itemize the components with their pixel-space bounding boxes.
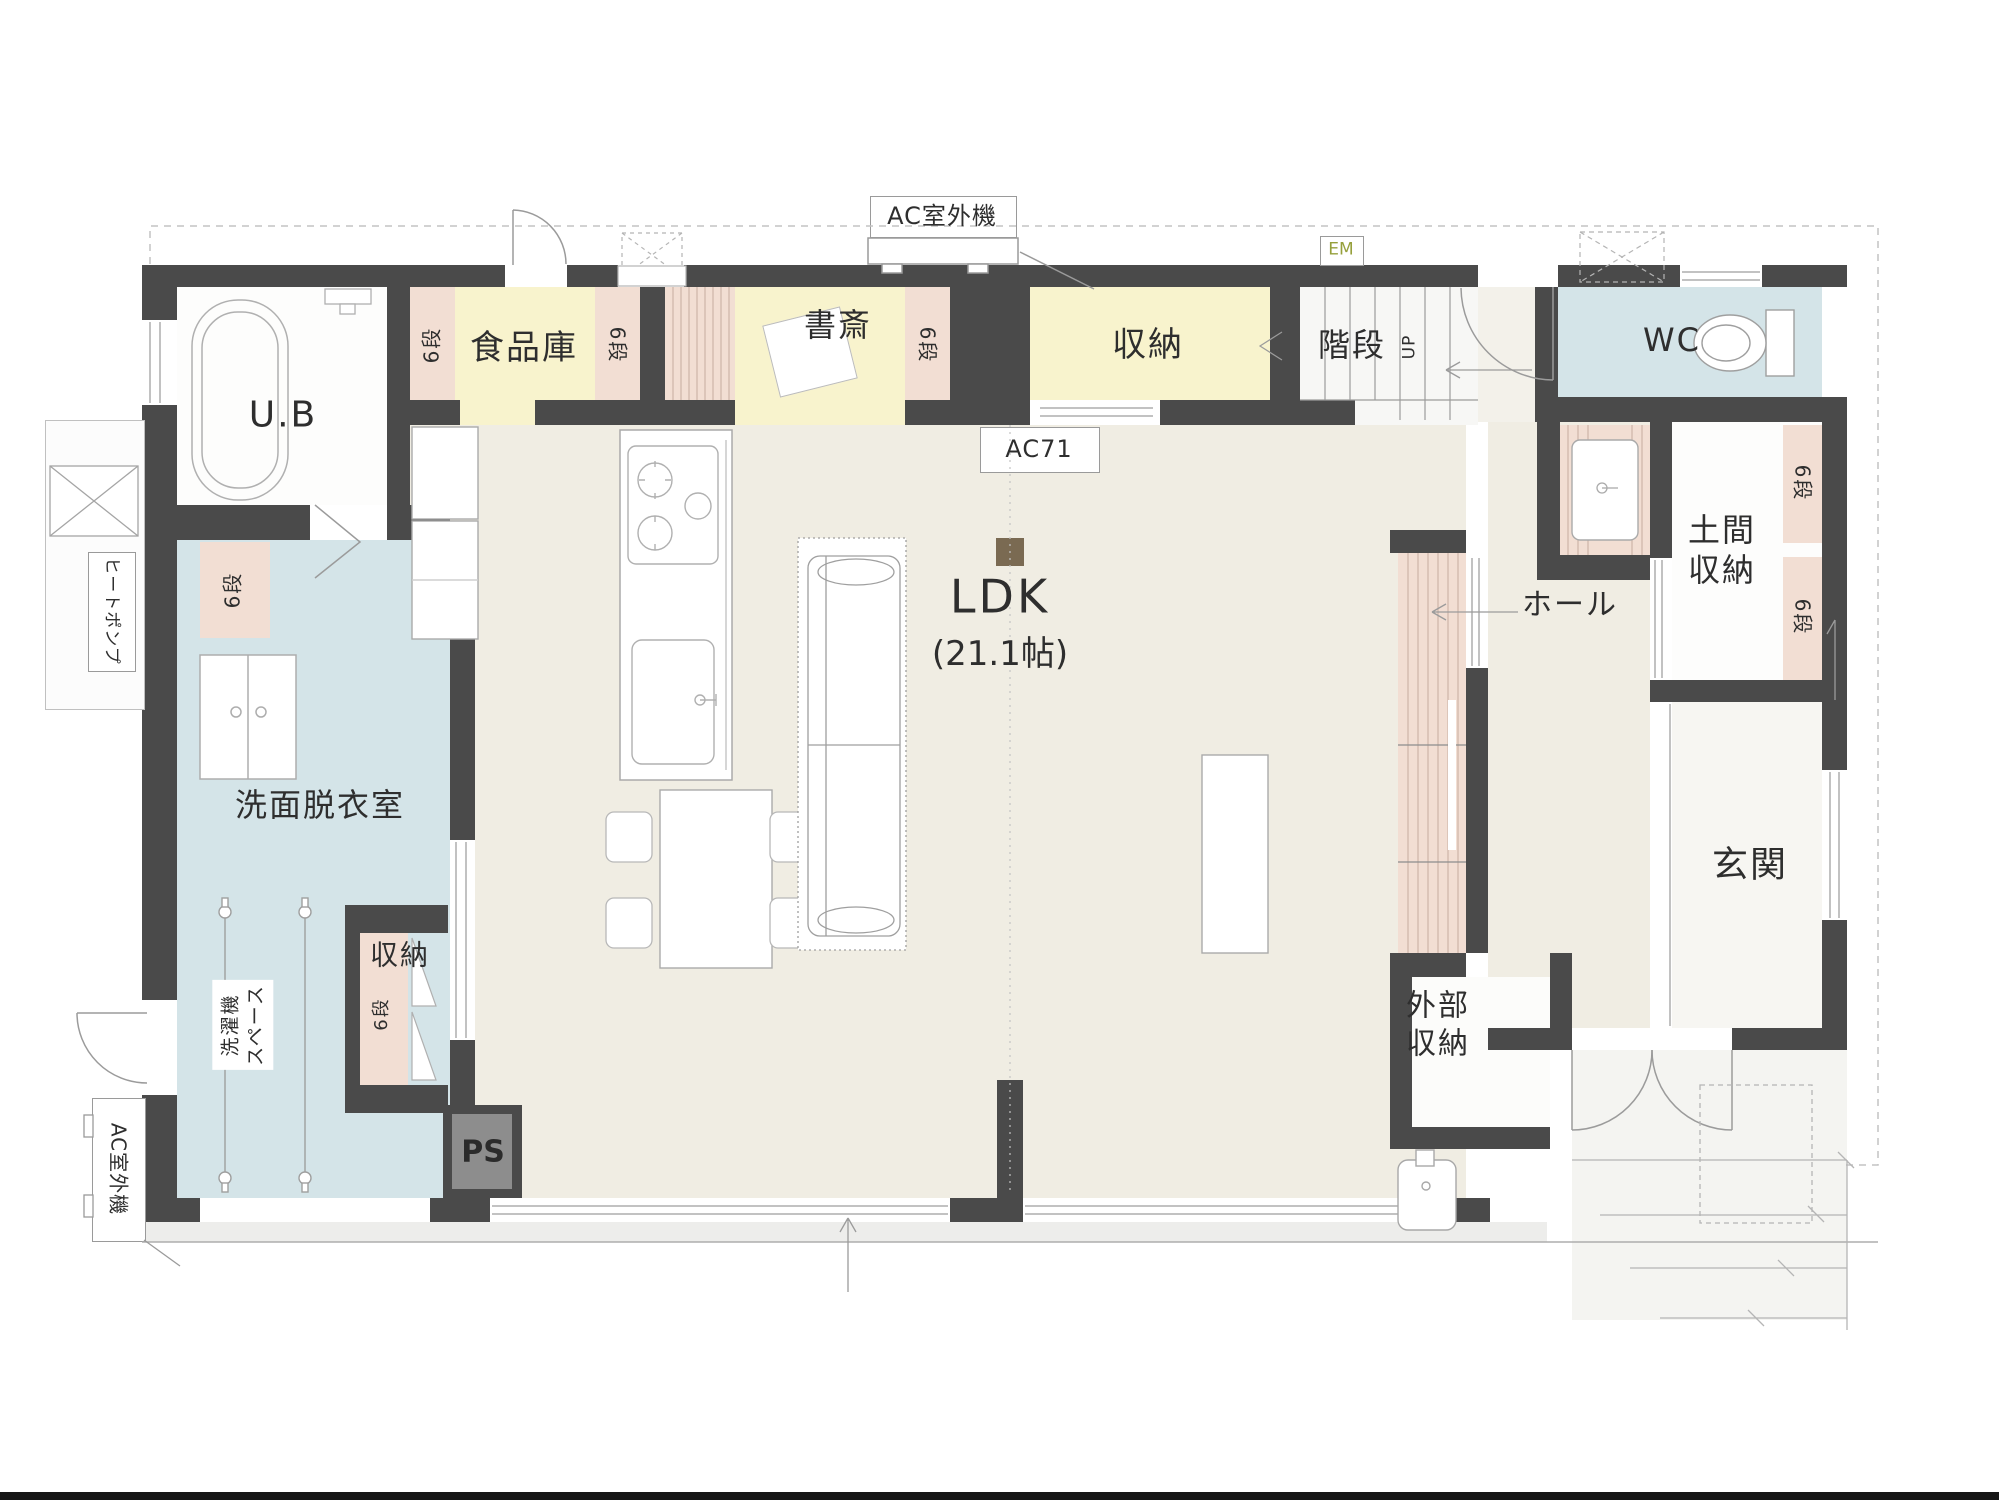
wall <box>1822 920 1847 1028</box>
heatpump-label: ヒートポンプ <box>100 557 121 665</box>
wall <box>177 505 310 540</box>
wall <box>1390 1127 1550 1149</box>
room-pantry-entry <box>460 400 535 425</box>
wall <box>142 265 505 287</box>
sill-band <box>142 1222 1547 1242</box>
wall <box>640 400 735 425</box>
wall <box>1270 287 1300 400</box>
shelf-label: 6段 <box>221 572 246 609</box>
ac-outdoor-bottom-label: AC室外機 <box>106 1123 131 1215</box>
room-ldk-floor-upper <box>410 425 1466 540</box>
shelf-label: 6段 <box>420 327 445 364</box>
wall <box>1160 400 1300 425</box>
wall <box>905 400 1030 425</box>
window-gap <box>490 1198 950 1222</box>
wall <box>142 405 177 537</box>
wall <box>567 265 618 287</box>
room-label-pantry: 食品庫 <box>470 327 578 370</box>
room-label-stairs: 階段 <box>1318 325 1386 365</box>
door-gap <box>1572 1028 1732 1050</box>
porch-floor <box>1572 1050 1847 1320</box>
room-label-genkan: 玄関 <box>1712 843 1788 888</box>
wall <box>1466 668 1488 953</box>
room-label-storage-bottom: 収納 <box>370 938 430 973</box>
wall <box>142 1198 200 1222</box>
room-label-gaibu: 外部 収納 <box>1406 988 1470 1063</box>
pillar <box>996 538 1024 566</box>
room-label-study: 書斎 <box>804 305 872 345</box>
wall <box>410 400 460 425</box>
window-gap <box>142 320 177 405</box>
shelf-label: 6段 <box>371 997 394 1030</box>
wall <box>640 287 665 400</box>
room-label-hall: ホール <box>1522 586 1618 624</box>
wall <box>1300 400 1355 425</box>
wall <box>1403 1198 1490 1222</box>
shelf-label: 6段 <box>915 327 940 364</box>
wall <box>1535 397 1847 422</box>
wall <box>1762 265 1847 287</box>
wall <box>1822 422 1847 770</box>
louver-strip <box>1398 553 1466 953</box>
room-label-wc: WC <box>1643 320 1701 360</box>
wall-closet-frame <box>345 905 448 933</box>
wall <box>142 287 177 320</box>
room-label-ldk: LDK <box>950 568 1050 626</box>
wall <box>410 505 450 540</box>
shelf-label: 6段 <box>1790 599 1815 636</box>
room-label-ub: U.B <box>249 393 318 438</box>
window-gap <box>1466 556 1486 668</box>
door-gap <box>1478 265 1558 287</box>
image-edge <box>0 1492 1999 1500</box>
wall <box>950 287 1030 400</box>
wall <box>1732 1028 1847 1050</box>
window-gap <box>1680 265 1762 287</box>
door-gap <box>1035 400 1155 425</box>
room-label-washroom: 洗面脱衣室 <box>235 785 405 825</box>
wall <box>1390 530 1466 553</box>
window-gap <box>618 265 684 287</box>
shelf-label: 6段 <box>1790 465 1815 502</box>
wall <box>535 400 640 425</box>
em-label: EM <box>1328 239 1353 260</box>
wall <box>142 537 177 1000</box>
wall <box>450 1040 475 1110</box>
window-gap <box>1023 1198 1403 1222</box>
sliding-door-gap <box>450 840 475 1040</box>
wall <box>450 540 475 840</box>
wall <box>997 1080 1023 1198</box>
ldk-size-label: (21.1帖) <box>932 633 1068 676</box>
wall <box>1390 953 1466 977</box>
wall <box>684 265 1478 287</box>
window-gap <box>1822 770 1847 920</box>
wall-closet-frame <box>345 1085 448 1113</box>
window-gap <box>505 265 567 287</box>
wall <box>1488 1028 1572 1050</box>
wall <box>1535 287 1558 397</box>
step-strip <box>665 287 735 400</box>
ps-label: PS <box>461 1133 505 1171</box>
wall <box>1650 422 1672 558</box>
floor-plan-page: U.B 食品庫 6段 6段 書斎 6段 収納 階段 UP EM AC室外機 WC… <box>0 0 1999 1500</box>
wall <box>1537 422 1560 555</box>
stairs-up-label: UP <box>1399 335 1420 360</box>
wall <box>1650 680 1847 702</box>
wall <box>387 287 410 540</box>
basin-alcove <box>1560 425 1650 555</box>
wall <box>1558 265 1680 287</box>
wall <box>1550 953 1572 1028</box>
laundry-space-label: 洗濯機 スペース <box>212 980 273 1070</box>
shelf-label: 6段 <box>605 327 630 364</box>
wall <box>950 1198 1023 1222</box>
wall <box>1537 555 1650 580</box>
room-label-storage-top: 収納 <box>1112 324 1184 367</box>
hall-upper-floor <box>1478 287 1535 422</box>
room-label-doma: 土間 収納 <box>1688 510 1756 590</box>
wall-closet-frame <box>345 933 360 1085</box>
wall <box>430 1198 490 1222</box>
ac-outdoor-top-label: AC室外機 <box>887 201 997 231</box>
door-gap <box>142 1000 177 1095</box>
ac71-label: AC71 <box>1005 434 1072 464</box>
